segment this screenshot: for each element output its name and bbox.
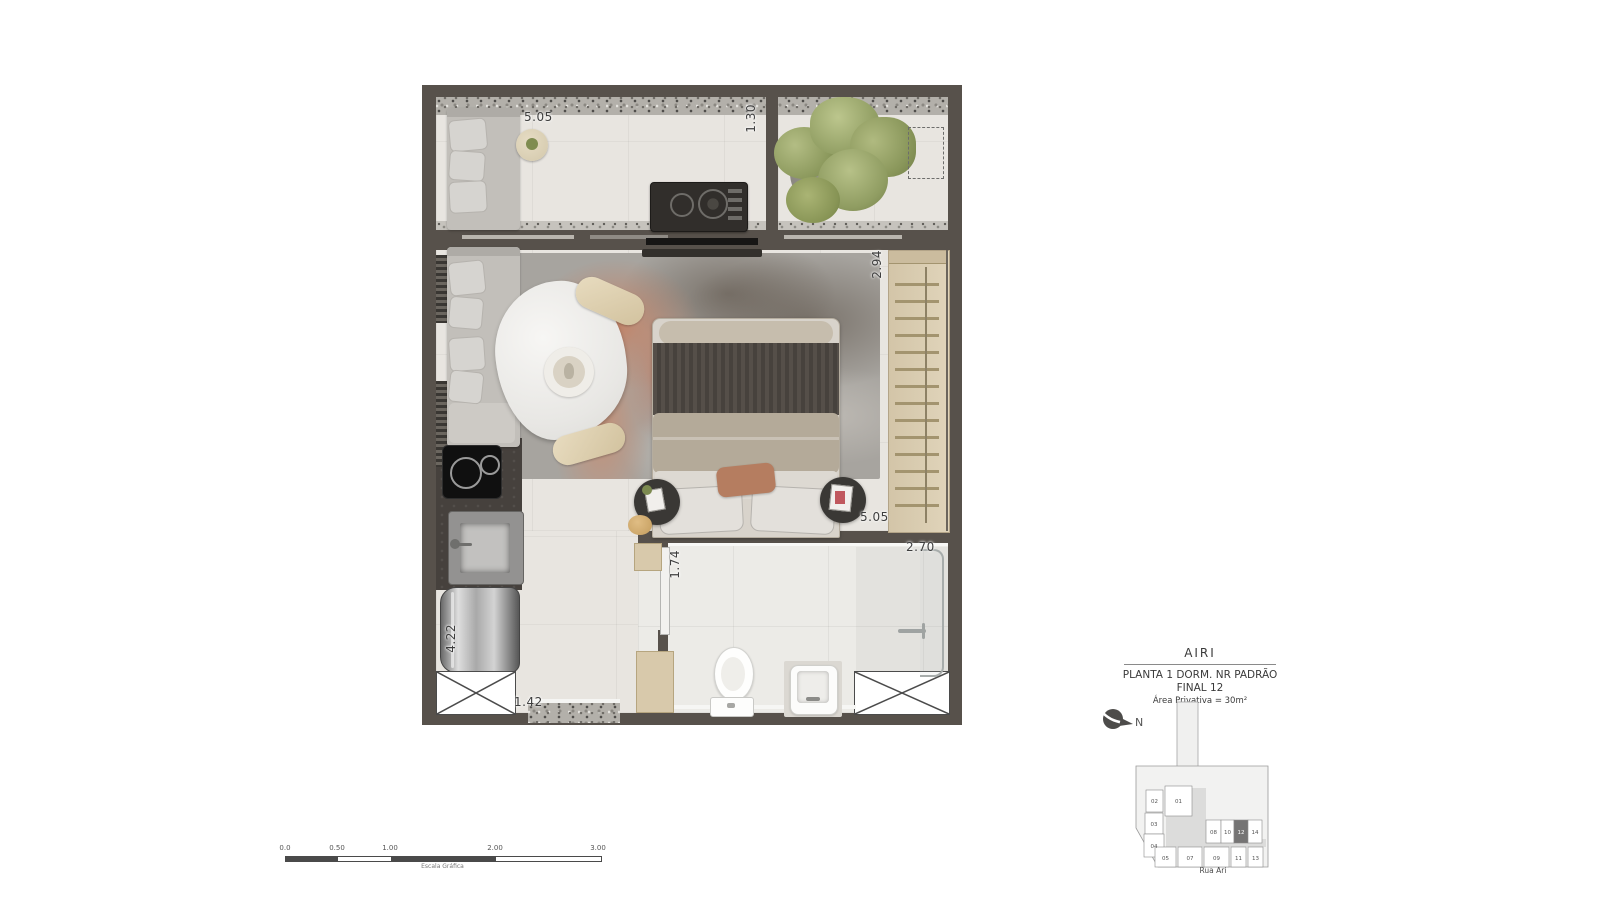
unit-number: 11 [1235, 856, 1242, 862]
wardrobe [888, 250, 950, 533]
toilet-seat [721, 657, 745, 691]
scale-bar-segment [391, 857, 496, 861]
table-vase [564, 363, 574, 379]
wall-top [422, 85, 962, 97]
scale-tick: 0.50 [329, 844, 345, 852]
project-title: AIRI [1118, 646, 1282, 661]
unit-number: 13 [1252, 856, 1259, 862]
bbq-knobs [728, 189, 742, 223]
scale-bar: 0.0 0.50 1.00 2.00 3.00 Escala Gráfica [285, 840, 600, 870]
dim-bathroom-width: 2.70 [906, 540, 935, 554]
sliding-door-track-1 [462, 235, 574, 239]
street-label: Rua Ari [1200, 866, 1227, 875]
toilet-flush-button [727, 703, 735, 708]
sink-basin [460, 523, 510, 573]
plant-foliage [786, 177, 840, 223]
title-block: AIRI PLANTA 1 DORM. NR PADRÃO FINAL 12 Á… [1118, 646, 1282, 707]
bed [652, 318, 840, 538]
scale-tick: 1.00 [382, 844, 398, 852]
unit-number: 03 [1151, 822, 1158, 828]
shower-grab-bar-end [922, 623, 925, 639]
unit-number-highlighted: 12 [1238, 830, 1245, 836]
terrace-sofa-pillow [448, 117, 489, 152]
tv-panel [646, 238, 758, 245]
sofa-pillow [448, 296, 485, 331]
unit-number: 14 [1252, 830, 1259, 836]
terrace-sofa-pillow [448, 150, 486, 182]
nightstand-plant [642, 485, 652, 495]
scale-tick: 2.00 [487, 844, 503, 852]
living-sofa-arm [447, 247, 520, 256]
media-console [642, 249, 762, 257]
cooktop-burner [450, 457, 482, 489]
sofa-pillow [448, 336, 486, 372]
gold-stool [628, 515, 652, 535]
shaft-x-icon [855, 672, 949, 714]
terrace-sofa-pillow [448, 180, 488, 214]
shaft-x-icon [437, 672, 515, 714]
unit-number: 07 [1187, 856, 1194, 862]
dim-kitchen-length: 4.22 [444, 624, 458, 653]
hall-floor [520, 531, 638, 713]
scale-tick: 3.00 [590, 844, 606, 852]
bbq-burner [670, 193, 694, 217]
dim-terrace-depth: 1.30 [744, 104, 758, 133]
title-divider [1124, 664, 1276, 665]
bed-duvet-fold [653, 437, 839, 440]
dim-bathroom-door: 1.74 [668, 550, 682, 579]
bed-throw [653, 343, 839, 415]
shower-glass [920, 549, 944, 677]
floor-plan: 5.05 1.30 2.94 5.05 2.70 1.74 4.22 1.42 [422, 85, 962, 725]
unit-number: 05 [1162, 856, 1169, 862]
hall-cabinet-lower [636, 651, 674, 713]
dim-bedroom-width: 5.05 [860, 510, 889, 524]
shaft-left [436, 671, 516, 715]
sliding-door-track-3 [784, 235, 902, 239]
unit-number: 04 [1151, 844, 1158, 850]
unit-number: 09 [1213, 856, 1220, 862]
scale-bar-track [285, 856, 602, 862]
terrace-sofa-arm [447, 108, 520, 117]
unit-number: 10 [1224, 830, 1231, 836]
page: 5.05 1.30 2.94 5.05 2.70 1.74 4.22 1.42 … [0, 0, 1600, 900]
frame-art [835, 491, 845, 504]
sofa-pillow [447, 259, 486, 297]
key-plan: 02 01 03 04 08 10 12 14 05 07 09 11 13 [1128, 700, 1278, 872]
unit-number: 01 [1175, 799, 1182, 805]
scale-bar-segment [286, 857, 338, 861]
table-plant [526, 138, 538, 150]
dim-terrace-width: 5.05 [524, 110, 553, 124]
sofa-pillow [447, 369, 484, 404]
dim-entry-width: 1.42 [514, 695, 543, 709]
hall-cabinet-upper [634, 543, 662, 571]
key-plan-drawing: 02 01 03 04 08 10 12 14 05 07 09 11 13 [1128, 700, 1278, 872]
wardrobe-hangers [895, 269, 939, 521]
wall-left [422, 85, 436, 725]
bbq-burner [698, 189, 728, 219]
wall-right [948, 85, 962, 725]
wardrobe-rail [925, 267, 927, 523]
wardrobe-gap [946, 250, 948, 531]
plan-type: PLANTA 1 DORM. NR PADRÃO [1118, 669, 1282, 682]
scale-tick: 0.0 [279, 844, 290, 852]
unit-number: 08 [1210, 830, 1217, 836]
shaft-right [854, 671, 950, 715]
unit-final: FINAL 12 [1118, 682, 1282, 695]
bed-bolster [659, 321, 833, 345]
basin-tap [806, 697, 820, 701]
scale-caption: Escala Gráfica [285, 863, 600, 870]
dim-bedroom-depth: 2.94 [870, 250, 884, 279]
cooktop-burner [480, 455, 500, 475]
sink-faucet-arm [458, 543, 472, 546]
projection-dashed-box [908, 127, 944, 179]
wardrobe-shelf [889, 251, 947, 264]
unit-number: 02 [1151, 799, 1158, 805]
living-sofa-chaise [449, 403, 515, 443]
accent-pillow [716, 462, 777, 498]
wall-slats [436, 255, 447, 323]
